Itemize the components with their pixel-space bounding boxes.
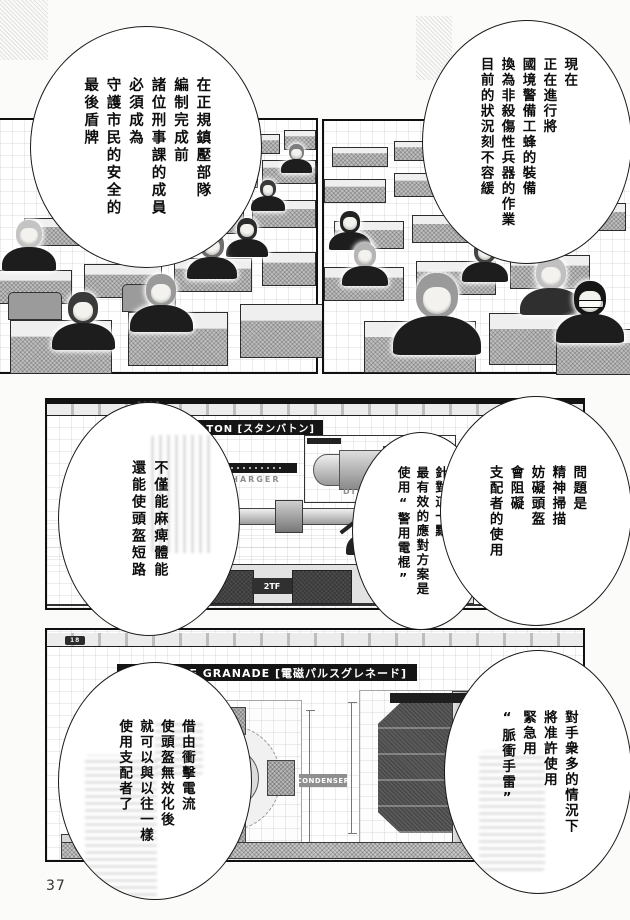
bubble-line: 就可以與以往一樣 — [134, 719, 155, 843]
bubble-line: 問題是 — [567, 465, 588, 558]
seated-person — [289, 144, 304, 160]
speech-bubble-grenade: 對手衆多的情況下 將准許使用 緊急用 “脈衝手雷” — [444, 650, 630, 894]
seated-person — [146, 274, 176, 306]
bubble-line: 還能使頭盔短路 — [127, 460, 149, 579]
bubble-line: 不僅能麻痺體能 — [149, 460, 171, 579]
desk — [240, 304, 328, 358]
manga-page: { "page": { "number": "37" }, "panels": … — [0, 0, 630, 920]
speech-bubble-formation: 在正規鎮壓部隊 編制完成前 諸位刑事課的成員 必須成為 守護市民的安全的 最後盾… — [30, 26, 262, 268]
bubble-line: 現在 — [558, 57, 579, 228]
bubble-line: 在正規鎮壓部隊 — [191, 77, 213, 217]
bubble-line: 必須成為 — [124, 77, 146, 217]
speech-bubble-effect: 不僅能麻痺體能 還能使頭盔短路 — [58, 402, 240, 636]
seated-person — [68, 292, 98, 324]
seated-person — [354, 243, 376, 267]
baton-collar — [275, 500, 303, 533]
page-number: 37 — [46, 878, 66, 894]
dimension-line-2 — [351, 702, 352, 834]
bubble-line: 使頭盔無效化後 — [155, 719, 176, 843]
bubble-line: “脈衝手雷” — [496, 710, 517, 834]
bubble-line: 國境警備工蜂的裝備 — [517, 57, 538, 228]
baton-tip — [313, 454, 341, 486]
seat-back — [8, 292, 62, 320]
equipment-tag: 2TF — [252, 578, 292, 594]
bubble-line: 目前的狀況刻不容緩 — [475, 57, 496, 228]
seated-person — [260, 180, 276, 197]
bubble-line: 緊急用 — [517, 710, 538, 834]
condenser-label: CONDENSER — [299, 774, 347, 787]
bubble-line: 對手衆多的情況下 — [559, 710, 580, 834]
seated-person — [340, 211, 360, 233]
bubble-line: 將准許使用 — [538, 710, 559, 834]
schematic-serial: 18 — [65, 636, 85, 645]
fin-right — [267, 760, 295, 796]
seated-person — [16, 220, 42, 248]
bubble-line: 會阻礙 — [505, 465, 526, 558]
bubble-line: 守護市民的安全的 — [101, 77, 123, 217]
desk — [332, 147, 388, 167]
tick-strip — [47, 633, 583, 647]
schematic-title-text: ATON [スタンバトン] — [198, 420, 315, 435]
bubble-line: 借由衝擊電流 — [176, 719, 197, 843]
bubble-line: 精神掃描 — [546, 465, 567, 558]
bubble-line: 最後盾牌 — [79, 77, 101, 217]
speech-bubble-shock: 借由衝擊電流 使頭盔無效化後 就可以與以往一樣 使用支配者了 — [58, 662, 252, 900]
bubble-line: 最有效的應對方案是 — [412, 466, 431, 597]
speech-bubble-problem: 問題是 精神掃描 妨礙頭盔 會阻礙 支配者的使用 — [440, 396, 630, 626]
seated-person — [416, 273, 458, 318]
corner-screentone — [0, 0, 48, 60]
seated-person — [237, 218, 257, 240]
bubble-line: 使用“警用電棍” — [393, 466, 412, 597]
speech-bubble-operation: 現在 正在進行將 國境警備工蜂的裝備 換為非殺傷性兵器的作業 目前的狀況刻不容緩 — [422, 20, 630, 264]
bubble-line: 正在進行將 — [537, 57, 558, 228]
bubble-line: 妨礙頭盔 — [526, 465, 547, 558]
equipment-case-2 — [292, 570, 352, 604]
inset-tab — [307, 438, 341, 444]
desk — [262, 252, 316, 286]
bubble-line: 支配者的使用 — [484, 465, 505, 558]
bubble-line: 編制完成前 — [168, 77, 190, 217]
bubble-line: 諸位刑事課的成員 — [146, 77, 168, 217]
glasses-icon — [578, 300, 603, 308]
desk — [324, 179, 386, 203]
bubble-line: 使用支配者了 — [113, 719, 134, 843]
bubble-line: 換為非殺傷性兵器的作業 — [496, 57, 517, 228]
seated-person — [574, 281, 606, 316]
